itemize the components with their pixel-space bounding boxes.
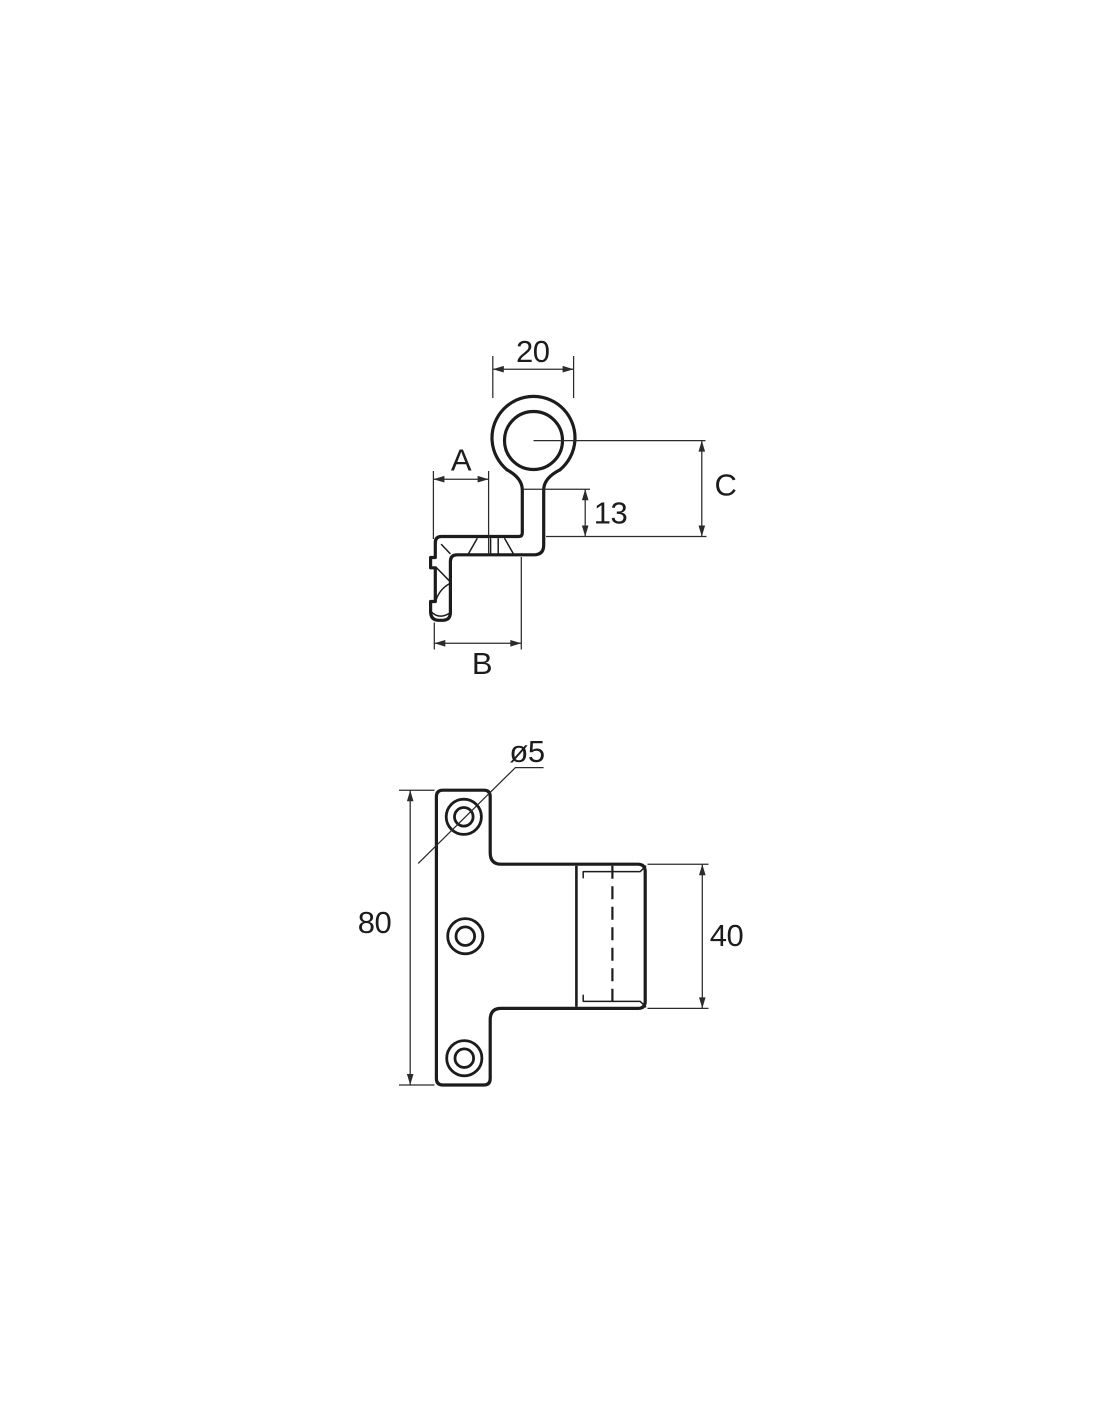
tube-socket-edges [583, 866, 645, 1007]
technical-drawing-canvas: 20 A 13 C [0, 0, 1100, 1422]
screw-hole-bottom [447, 1041, 482, 1076]
drawing-page: 20 A 13 C [0, 0, 1100, 1422]
dim-label-b: B [472, 646, 492, 681]
side-profile-view: 20 A 13 C [431, 334, 737, 681]
dim-label-a: A [451, 443, 472, 478]
dim-label-40: 40 [710, 918, 744, 953]
dim-label-hole-diameter: ø5 [509, 734, 544, 769]
dimension-c: C [534, 441, 737, 537]
dimension-plate-height: 80 [358, 790, 435, 1085]
screw-hole-middle [448, 919, 483, 954]
bracket-profile-outline [431, 470, 560, 621]
arm-fillet-edges [468, 539, 513, 554]
dimension-neck-13: 13 [523, 489, 627, 536]
dim-label-20: 20 [516, 334, 550, 369]
dimension-ring-width: 20 [493, 334, 574, 398]
dim-label-c: C [715, 468, 737, 503]
front-view: ø5 80 40 [358, 734, 744, 1085]
dim-label-13: 13 [594, 496, 627, 531]
dimension-boss-diameter: 40 [648, 864, 744, 1008]
screw-hole-top [446, 799, 481, 834]
dim-label-80: 80 [358, 905, 392, 940]
